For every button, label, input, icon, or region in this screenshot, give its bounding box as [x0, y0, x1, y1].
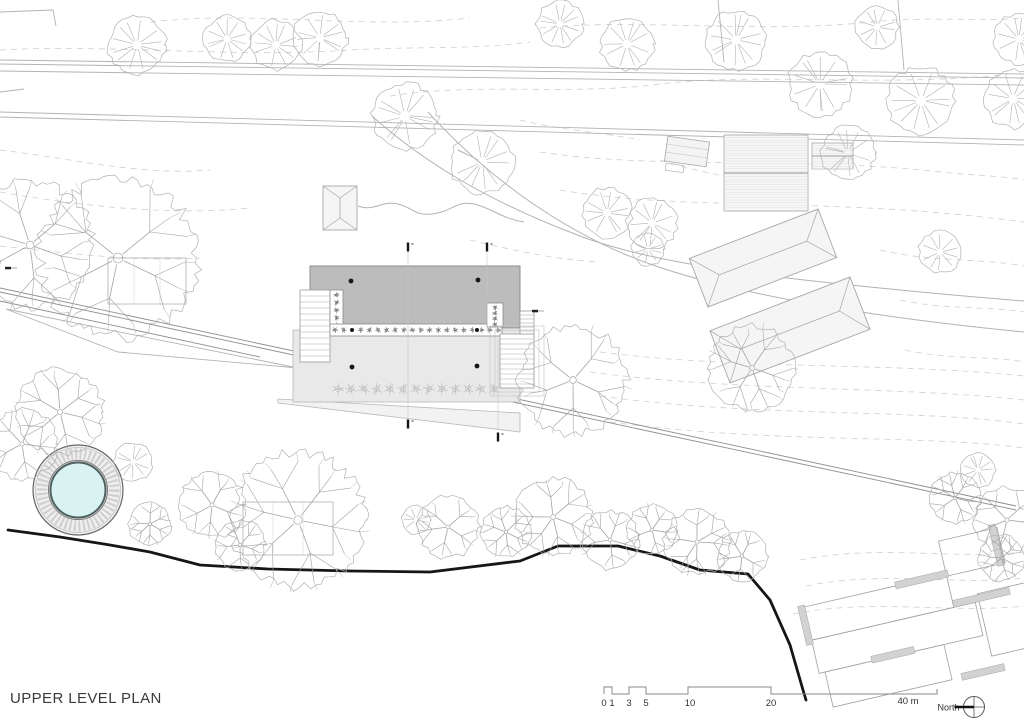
branch: [0, 431, 10, 432]
twig: [488, 546, 490, 548]
twig: [709, 351, 714, 353]
tree-canopy: [625, 198, 678, 249]
twig: [894, 103, 916, 112]
branch: [155, 262, 185, 276]
twig: [983, 496, 986, 498]
twig: [751, 403, 752, 408]
road-line: [718, 0, 724, 62]
funicular-track: [0, 301, 260, 357]
road-line: [898, 0, 904, 70]
tree-large: [15, 367, 106, 457]
twig: [723, 533, 727, 535]
branch: [0, 236, 25, 244]
twig: [406, 121, 410, 143]
scale-tick-label: 1: [609, 698, 614, 709]
branch: [714, 543, 727, 545]
branch: [668, 539, 680, 540]
twig: [411, 509, 415, 518]
branch: [665, 532, 670, 541]
trunk: [446, 525, 450, 529]
tree: [599, 19, 655, 72]
twig: [730, 535, 731, 538]
branch: [16, 188, 20, 214]
twig: [625, 387, 631, 389]
twig: [323, 40, 339, 50]
twig: [939, 234, 940, 249]
twig: [924, 105, 938, 124]
twig: [577, 539, 580, 543]
twig: [943, 248, 957, 252]
twig: [614, 359, 619, 363]
twig: [270, 580, 273, 588]
twig: [647, 503, 648, 506]
twig: [586, 211, 603, 213]
twig: [866, 30, 875, 41]
tree: [961, 452, 997, 487]
branch: [751, 389, 760, 404]
branch: [110, 264, 117, 298]
twig: [591, 325, 593, 331]
twig: [926, 99, 949, 100]
branch: [551, 486, 563, 497]
twig: [878, 11, 884, 24]
branch: [22, 447, 24, 462]
trunk: [20, 442, 24, 446]
branch: [152, 519, 160, 523]
twig: [611, 28, 624, 42]
branch: [160, 526, 171, 530]
twig: [924, 253, 937, 259]
twig: [587, 422, 589, 428]
branch: [961, 510, 964, 521]
branch: [940, 480, 952, 486]
twig: [794, 75, 815, 82]
branch: [610, 542, 612, 554]
branch: [497, 533, 505, 541]
branch: [249, 527, 255, 536]
branch: [185, 506, 197, 513]
tree-large: [978, 534, 1024, 582]
twig: [901, 105, 917, 122]
twig: [613, 403, 619, 406]
twig: [319, 459, 323, 466]
twig: [229, 23, 238, 36]
branch: [939, 505, 945, 510]
twig: [267, 26, 274, 42]
twig: [483, 167, 485, 189]
tree-large: [662, 508, 732, 577]
twig: [483, 524, 486, 525]
branch: [218, 475, 220, 490]
twig: [469, 508, 472, 511]
branch: [591, 340, 603, 359]
scale-end-label: 40 m: [897, 696, 918, 707]
branch: [460, 516, 472, 517]
twig: [217, 22, 226, 36]
pool: [33, 445, 123, 535]
branch: [230, 558, 240, 565]
branch: [29, 414, 33, 428]
tree: [705, 12, 766, 72]
branch: [956, 488, 963, 497]
twig: [757, 540, 760, 541]
wall-segment: [961, 664, 1005, 681]
twig: [561, 28, 564, 44]
branch: [950, 475, 952, 485]
twig: [217, 558, 220, 559]
twig: [582, 553, 585, 554]
hip-roof-pavilion: [323, 186, 357, 230]
branch: [210, 522, 217, 533]
branch: [247, 485, 264, 513]
benchmark-mark: [532, 310, 538, 313]
branch: [542, 520, 552, 534]
branch: [459, 501, 460, 517]
branch: [460, 511, 468, 517]
twig: [1020, 43, 1024, 60]
twig: [683, 515, 685, 519]
section-marker: [407, 243, 414, 252]
branch: [952, 485, 955, 496]
branch: [516, 516, 533, 517]
tree-frame-outline: [108, 258, 186, 304]
twig: [655, 226, 666, 239]
branch: [150, 507, 158, 513]
pool-water: [51, 463, 106, 518]
twig: [600, 193, 605, 210]
branch: [659, 519, 670, 520]
branch: [160, 510, 161, 519]
site-plan-drawing: 0135102040 mNorth: [0, 0, 1024, 724]
twig: [993, 84, 1009, 96]
branch: [612, 555, 613, 565]
branch: [450, 516, 460, 525]
branch: [502, 511, 509, 520]
twig: [1020, 18, 1022, 35]
twig: [141, 42, 161, 44]
branch: [202, 491, 210, 503]
tree-large: [128, 502, 173, 546]
twig: [861, 28, 874, 34]
twig: [141, 505, 143, 507]
branch: [753, 563, 761, 567]
trunk: [740, 554, 743, 557]
branch: [243, 512, 264, 527]
branch: [583, 533, 595, 543]
branch: [220, 547, 227, 559]
twig: [650, 245, 661, 248]
twig: [656, 505, 657, 508]
trunk: [57, 409, 62, 414]
branch: [697, 517, 708, 525]
tree-canopy: [662, 508, 732, 574]
twig: [526, 541, 529, 542]
branch: [943, 505, 945, 518]
branch: [197, 506, 209, 513]
twig: [13, 180, 16, 187]
branch: [432, 527, 445, 529]
branch: [10, 431, 20, 442]
twig: [699, 571, 700, 575]
branch: [31, 250, 34, 278]
twig: [420, 542, 423, 545]
branch: [521, 504, 533, 517]
twig: [181, 487, 185, 488]
branch: [40, 446, 54, 447]
twig: [525, 393, 530, 397]
branch: [697, 512, 699, 525]
twig: [611, 214, 628, 216]
tree: [107, 15, 167, 76]
branch: [34, 224, 55, 242]
column-dot: [474, 327, 479, 332]
branch: [646, 506, 648, 518]
trunk: [608, 538, 612, 542]
branch: [251, 478, 282, 488]
twig: [487, 162, 509, 163]
branch: [155, 276, 164, 310]
branch: [123, 232, 150, 254]
twig: [852, 155, 870, 161]
branch: [436, 516, 446, 525]
twig: [971, 514, 974, 516]
branch: [0, 453, 6, 460]
twig: [265, 463, 271, 469]
twig: [735, 45, 736, 66]
twig: [410, 117, 432, 122]
branch: [82, 406, 95, 417]
tree-canopy: [705, 12, 766, 72]
branch: [490, 541, 496, 546]
tree: [535, 0, 584, 48]
branch: [256, 544, 272, 565]
branch: [500, 509, 501, 519]
branch: [0, 261, 1, 292]
branch: [303, 521, 332, 527]
tree: [401, 505, 431, 535]
branch: [61, 256, 70, 283]
twig: [113, 39, 133, 44]
twig: [123, 464, 131, 475]
branch: [680, 539, 694, 541]
tree-large: [416, 495, 481, 559]
column-dot: [350, 365, 355, 370]
twig: [552, 27, 559, 42]
branch: [63, 398, 78, 409]
branch: [748, 536, 750, 544]
branch: [6, 445, 19, 452]
branch: [195, 513, 197, 531]
branch: [699, 533, 711, 540]
tree-canopy: [293, 12, 349, 67]
branch: [725, 387, 741, 390]
tree-canopy: [15, 367, 105, 457]
section-marker: [407, 420, 414, 429]
twig: [979, 456, 982, 468]
branch: [1011, 550, 1021, 551]
twig: [631, 45, 648, 52]
twig: [21, 390, 26, 392]
contour-line: [880, 250, 1024, 266]
twig: [750, 533, 751, 536]
branch: [185, 488, 202, 491]
wall-segment: [871, 646, 915, 663]
twig: [477, 135, 481, 157]
tree-canopy: [401, 505, 431, 535]
branch: [1012, 561, 1022, 564]
twig: [608, 192, 611, 209]
twig: [511, 516, 516, 517]
twig: [681, 565, 682, 569]
tree: [993, 13, 1024, 65]
branch: [0, 199, 20, 214]
scale-bar: 0135102040 m: [601, 687, 937, 709]
branch: [1019, 508, 1024, 511]
branch: [651, 543, 655, 553]
tree: [788, 52, 854, 118]
tree-large: [929, 471, 982, 525]
twig: [463, 166, 478, 182]
branch: [508, 533, 518, 538]
twig: [485, 140, 498, 158]
twig: [654, 204, 662, 220]
branch: [977, 508, 995, 510]
section-marker-letter: [412, 420, 414, 422]
twig: [471, 167, 480, 187]
branch: [601, 528, 609, 538]
branch: [656, 508, 660, 519]
property-line: [0, 89, 24, 92]
branch: [1, 248, 25, 261]
branch: [496, 541, 497, 554]
branch: [653, 519, 659, 528]
column-dot: [349, 279, 354, 284]
section-marker-letter: [491, 243, 493, 245]
twig: [240, 480, 247, 485]
site-plan-page: 0135102040 mNorth UPPER LEVEL PLAN: [0, 0, 1024, 724]
twig: [635, 244, 646, 248]
column-dot: [476, 278, 481, 283]
branch: [554, 408, 574, 426]
branch: [444, 529, 447, 542]
twig: [492, 513, 493, 516]
property-line: [6, 309, 298, 368]
branch: [712, 528, 724, 533]
section-marker: [486, 243, 493, 252]
twig: [989, 94, 1009, 97]
branch: [432, 543, 445, 551]
branch: [685, 518, 697, 525]
branch: [160, 519, 168, 521]
branch: [227, 545, 238, 546]
twig: [631, 223, 648, 224]
branch: [506, 534, 507, 545]
twig: [510, 553, 511, 556]
tree-canopy: [370, 82, 440, 152]
twig: [117, 458, 130, 461]
twig: [127, 22, 135, 40]
branch: [213, 490, 220, 502]
twig: [489, 514, 491, 517]
branch: [595, 540, 607, 542]
tree-large: [178, 471, 247, 539]
twig: [432, 503, 435, 506]
column-dot: [475, 364, 480, 369]
contour-line: [0, 246, 200, 259]
twig: [876, 30, 877, 45]
branch: [735, 535, 738, 545]
branch: [501, 545, 508, 552]
tree-large: [479, 505, 532, 557]
twig: [1014, 76, 1022, 94]
branch: [0, 447, 6, 452]
branch: [556, 518, 572, 524]
twig: [114, 46, 133, 52]
tree-large: [626, 503, 679, 555]
twig: [720, 389, 725, 391]
farm-annex: [812, 143, 853, 169]
tree-canopy: [107, 15, 167, 76]
branch: [491, 517, 494, 528]
twig: [741, 41, 761, 45]
twig: [979, 562, 982, 563]
twig: [1010, 103, 1013, 123]
branch: [482, 527, 493, 532]
tree: [203, 15, 252, 62]
twig: [49, 434, 52, 437]
twig: [242, 520, 243, 523]
shed: [663, 136, 709, 176]
branch: [152, 525, 160, 530]
twig: [604, 334, 606, 340]
contour-line: [520, 120, 640, 140]
branch: [214, 506, 227, 512]
twig: [132, 516, 135, 517]
twig: [483, 540, 486, 541]
contour-line: [150, 18, 470, 22]
branch: [202, 479, 203, 491]
twig: [406, 521, 414, 527]
twig: [238, 515, 242, 516]
twig: [216, 545, 219, 546]
twig: [320, 15, 322, 34]
branch: [61, 256, 80, 259]
road-curve: [358, 203, 524, 222]
twig: [120, 27, 134, 41]
branch: [332, 527, 361, 532]
twig: [972, 510, 974, 513]
twig: [131, 529, 133, 530]
branch: [78, 391, 88, 398]
branch: [670, 539, 680, 545]
branch: [301, 492, 319, 515]
branch: [202, 522, 210, 530]
section-marker-bar: [486, 243, 488, 252]
branch: [957, 510, 960, 521]
branch: [551, 497, 553, 514]
twig: [256, 46, 273, 52]
branch: [502, 520, 506, 530]
twig: [119, 464, 130, 471]
branch: [976, 520, 991, 526]
twig: [563, 26, 578, 31]
twig: [70, 283, 76, 288]
branch: [155, 276, 178, 288]
contour-line: [610, 422, 1024, 448]
branch: [986, 499, 995, 508]
stair-right-lower-outline: [500, 334, 534, 388]
trunk: [650, 528, 653, 531]
